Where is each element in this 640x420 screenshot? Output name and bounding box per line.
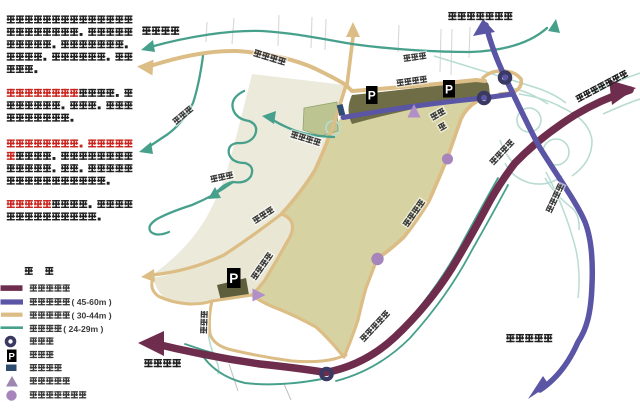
svg-text:( 30-44m ): ( 30-44m ) <box>72 310 112 320</box>
svg-text:( 24-29m ): ( 24-29m ) <box>63 324 103 334</box>
svg-text:( 45-60m ): ( 45-60m ) <box>72 297 112 307</box>
svg-text:P: P <box>229 271 238 286</box>
svg-text:P: P <box>445 83 453 97</box>
svg-text:P: P <box>9 352 16 363</box>
svg-text:P: P <box>368 89 376 103</box>
